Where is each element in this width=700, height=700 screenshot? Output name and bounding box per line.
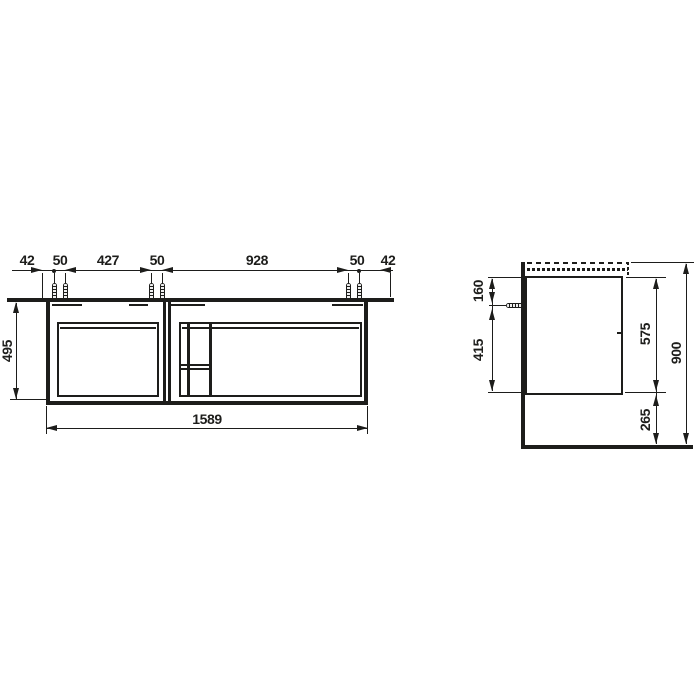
extension-line-left-42 (42, 273, 43, 298)
floor-line (521, 445, 693, 449)
extension-line-body-top (626, 277, 666, 278)
mounting-screw-icon (357, 283, 362, 299)
width-dim-label: 1589 (187, 412, 227, 426)
right-drawer-front (179, 322, 362, 397)
cabinet-divider-line (168, 301, 171, 401)
dim-arrow-left (46, 425, 57, 431)
internal-compartment-shelf (181, 364, 212, 366)
mounting-screw-icon (149, 283, 154, 299)
extension-line-body-bottom (625, 392, 666, 393)
dim-label-screw-span-2: 50 (137, 253, 177, 267)
total-height-dim-label: 900 (667, 329, 685, 377)
total-height-dim-line (686, 264, 687, 444)
dim-arrow-up (13, 302, 19, 313)
dim-label-right-overhang: 42 (368, 253, 408, 267)
extension-line-right-42 (390, 273, 391, 297)
dim-arrow-down (13, 388, 19, 399)
screw-extension-line (65, 273, 66, 283)
mounting-screw-icon (160, 283, 165, 299)
technical-drawing-sheet: 42 50 427 50 928 50 42 (0, 0, 700, 700)
countertop-dashed-edge (627, 262, 629, 275)
wall-anchor-screw-icon (506, 303, 522, 308)
dim-arrow-down (683, 433, 689, 444)
screw-extension-line (54, 273, 55, 283)
dim-arrow-up (653, 278, 659, 289)
internal-compartment-wall (187, 324, 190, 395)
body-height-dim-label: 575 (636, 310, 654, 358)
screw-extension-line (162, 273, 163, 283)
mounting-screw-icon (52, 283, 57, 299)
dim-arrow-right (337, 267, 348, 273)
left-drawer-front (57, 322, 159, 397)
extension-line-bottom (488, 392, 525, 393)
height-dim-label: 495 (0, 327, 16, 375)
body-height-dim-line (656, 279, 657, 444)
screw-extension-line (151, 273, 152, 283)
width-dim-line (46, 428, 368, 429)
dim-label-screw-gap-2: 928 (237, 253, 277, 267)
dim-label-screw-gap-1: 427 (88, 253, 128, 267)
dim-dot (357, 269, 361, 273)
dim-arrow-up (489, 278, 495, 289)
dim-arrow-right (357, 425, 368, 431)
side-cabinet-body (525, 276, 623, 395)
countertop-dashed-line (527, 268, 628, 271)
dim-arrow-up (489, 309, 495, 320)
mounting-screw-icon (63, 283, 68, 299)
mounting-screw-icon (346, 283, 351, 299)
dim-arrow-down (653, 380, 659, 391)
internal-compartment-wall (209, 324, 212, 395)
dim-arrow-down (489, 380, 495, 391)
top-to-screw-dim-label: 160 (469, 267, 487, 315)
floor-clearance-dim-label: 265 (636, 396, 654, 444)
cabinet-divider-line (163, 301, 166, 401)
screw-extension-line (348, 273, 349, 283)
countertop-dashed-line (527, 262, 628, 264)
screw-to-bottom-dim-label: 415 (469, 326, 487, 374)
height-dim-line (16, 303, 17, 399)
dim-label-screw-span-1: 50 (40, 253, 80, 267)
internal-compartment-shelf (181, 368, 212, 370)
dim-dot (52, 269, 56, 273)
height-extension-line (10, 399, 46, 400)
screw-extension-line (359, 273, 360, 283)
dim-arrow-up (683, 263, 689, 274)
door-gap-tick (617, 332, 623, 334)
drawer-top-edge-line (60, 327, 156, 329)
dim-arrow-down (489, 292, 495, 303)
